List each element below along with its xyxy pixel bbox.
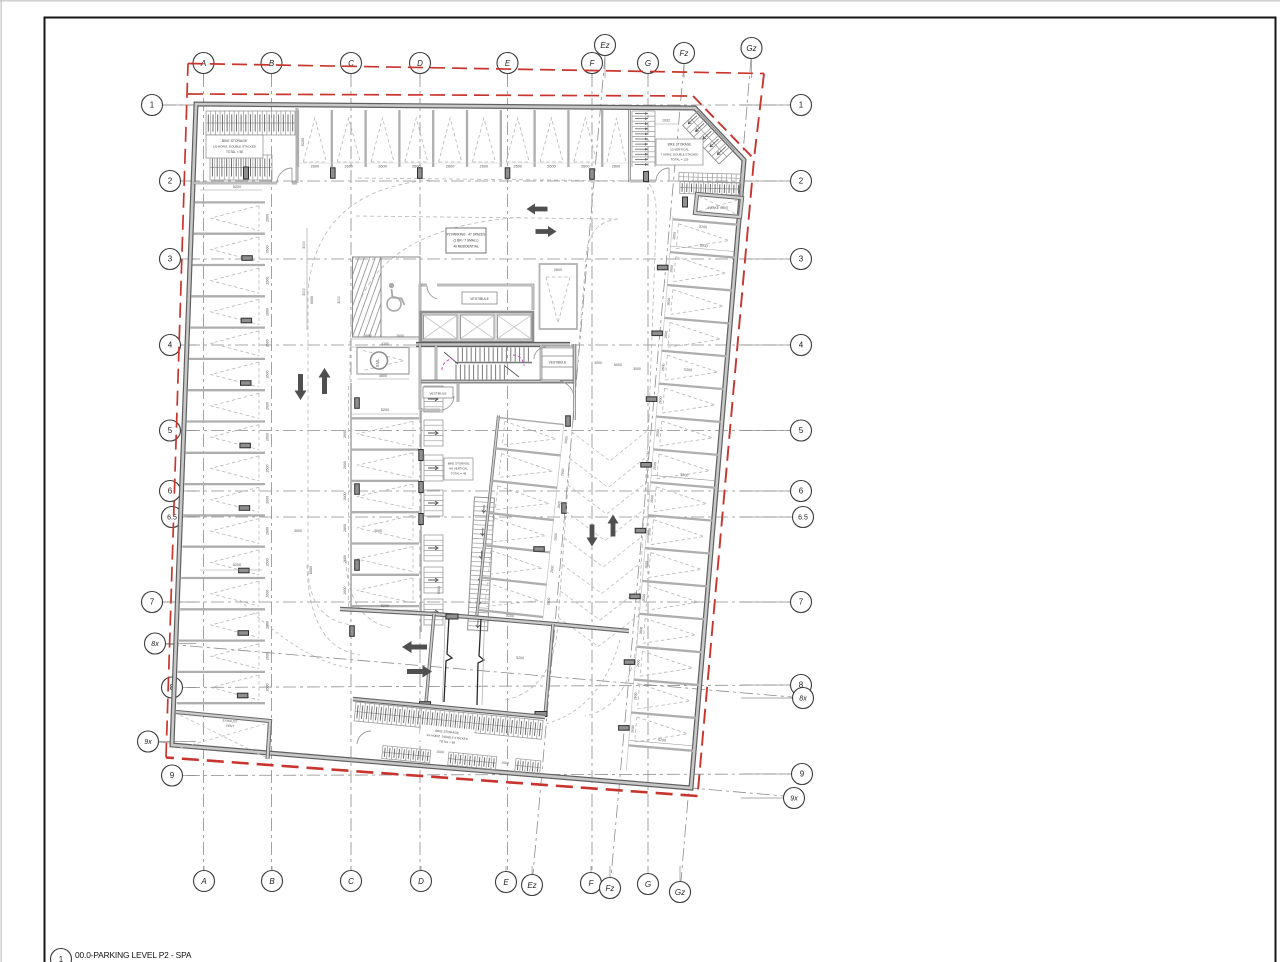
svg-text:2600: 2600 <box>560 468 565 476</box>
svg-text:2600: 2600 <box>343 586 347 594</box>
svg-text:2600: 2600 <box>554 268 562 272</box>
svg-text:5200: 5200 <box>658 738 666 743</box>
svg-text:2600: 2600 <box>513 165 521 169</box>
svg-text:2600: 2600 <box>550 565 555 573</box>
svg-text:5200: 5200 <box>233 185 241 189</box>
svg-text:2600: 2600 <box>669 265 674 273</box>
svg-text:4/0 VERTICAL: 4/0 VERTICAL <box>449 467 468 471</box>
svg-text:2600: 2600 <box>667 298 672 306</box>
svg-text:G: G <box>645 59 651 68</box>
svg-text:5200: 5200 <box>381 408 389 412</box>
svg-text:2600: 2600 <box>661 363 666 371</box>
svg-text:2600: 2600 <box>343 493 347 501</box>
svg-text:9: 9 <box>800 770 805 779</box>
svg-text:Ez: Ez <box>600 41 609 50</box>
svg-text:2600: 2600 <box>266 371 270 379</box>
svg-text:2600: 2600 <box>564 436 569 444</box>
svg-text:B: B <box>269 877 275 886</box>
svg-text:9x: 9x <box>790 796 798 803</box>
svg-text:2600: 2600 <box>633 692 638 700</box>
svg-text:6: 6 <box>168 487 173 496</box>
svg-text:TOTAL = 129: TOTAL = 129 <box>671 158 689 162</box>
svg-text:2600: 2600 <box>266 245 270 253</box>
svg-text:2600: 2600 <box>658 396 663 404</box>
svg-text:Ez: Ez <box>527 881 536 890</box>
svg-text:2600: 2600 <box>343 461 347 469</box>
svg-text:2600: 2600 <box>653 462 658 470</box>
svg-text:1550: 1550 <box>364 334 372 338</box>
svg-text:3000: 3000 <box>374 529 382 533</box>
svg-text:D: D <box>417 59 423 68</box>
svg-text:BIKE STORAGE: BIKE STORAGE <box>448 462 470 466</box>
svg-text:2600: 2600 <box>266 496 270 504</box>
svg-text:4600: 4600 <box>379 374 387 378</box>
svg-text:2600: 2600 <box>343 430 347 438</box>
svg-text:2600: 2600 <box>547 165 555 169</box>
svg-text:E: E <box>503 878 509 887</box>
svg-text:5200: 5200 <box>233 563 241 567</box>
svg-text:6000: 6000 <box>614 363 622 367</box>
svg-text:2600: 2600 <box>647 528 652 536</box>
svg-text:5200: 5200 <box>680 473 688 478</box>
svg-text:VENT: VENT <box>226 724 235 729</box>
svg-text:2600: 2600 <box>396 334 404 338</box>
svg-text:2600: 2600 <box>480 165 488 169</box>
svg-text:2600: 2600 <box>581 165 589 169</box>
svg-text:BIKE STORAGE: BIKE STORAGE <box>668 143 692 147</box>
svg-text:4: 4 <box>168 341 173 350</box>
svg-text:2600: 2600 <box>630 725 635 733</box>
svg-text:A: A <box>200 877 206 886</box>
svg-text:3: 3 <box>168 255 173 264</box>
svg-text:2600: 2600 <box>266 308 270 316</box>
svg-text:1: 1 <box>59 955 64 962</box>
svg-text:VESTIBULE: VESTIBULE <box>549 361 567 365</box>
svg-text:7 HORIZ. DOUBLE STACKED: 7 HORIZ. DOUBLE STACKED <box>661 153 699 157</box>
svg-text:2600: 2600 <box>343 524 347 532</box>
svg-text:2600: 2600 <box>266 652 270 660</box>
svg-text:2: 2 <box>168 177 173 186</box>
svg-text:2600: 2600 <box>266 277 270 285</box>
svg-text:6000: 6000 <box>309 566 313 574</box>
svg-text:E: E <box>505 59 511 68</box>
svg-text:1500: 1500 <box>436 750 444 755</box>
svg-text:2600: 2600 <box>664 331 669 339</box>
svg-text:3000: 3000 <box>302 288 306 296</box>
svg-text:2600: 2600 <box>644 561 649 569</box>
svg-text:2600: 2600 <box>266 558 270 566</box>
svg-text:6000: 6000 <box>437 586 442 594</box>
svg-text:2600: 2600 <box>639 626 644 634</box>
svg-text:3000: 3000 <box>337 296 341 304</box>
svg-text:2600: 2600 <box>344 165 352 169</box>
svg-text:5200: 5200 <box>699 244 707 249</box>
svg-text:5200: 5200 <box>516 656 524 661</box>
svg-text:2600: 2600 <box>266 527 270 535</box>
svg-text:Fz: Fz <box>606 884 615 893</box>
svg-text:40 RESIDENTIAL: 40 RESIDENTIAL <box>453 245 479 249</box>
svg-text:4: 4 <box>799 341 804 350</box>
svg-text:2: 2 <box>799 177 804 186</box>
svg-text:1/0 HORIZ. DOUBLE STACKED: 1/0 HORIZ. DOUBLE STACKED <box>213 145 257 149</box>
svg-text:BIKE STORAGE: BIKE STORAGE <box>222 139 248 143</box>
svg-text:6.5: 6.5 <box>798 515 808 522</box>
svg-text:10 VERTICAL: 10 VERTICAL <box>670 148 689 152</box>
svg-text:Gz: Gz <box>746 44 756 53</box>
svg-text:2600: 2600 <box>343 555 347 563</box>
svg-text:2600: 2600 <box>266 214 270 222</box>
svg-text:G: G <box>645 880 651 889</box>
svg-text:5200: 5200 <box>699 225 707 230</box>
svg-text:2600: 2600 <box>266 433 270 441</box>
svg-text:2600: 2600 <box>672 232 677 240</box>
svg-text:TOTAL = 46: TOTAL = 46 <box>451 472 467 476</box>
svg-text:2600: 2600 <box>636 659 641 667</box>
svg-text:4150: 4150 <box>381 342 389 346</box>
svg-text:3000: 3000 <box>294 529 302 533</box>
svg-text:5200: 5200 <box>301 138 305 146</box>
svg-text:1932: 1932 <box>662 119 670 123</box>
svg-text:VESTIBULE: VESTIBULE <box>429 392 446 396</box>
svg-text:3000: 3000 <box>633 367 641 371</box>
svg-text:7: 7 <box>799 598 804 607</box>
svg-text:9x: 9x <box>144 739 152 746</box>
svg-text:2600: 2600 <box>650 495 655 503</box>
svg-text:VESTIBULE: VESTIBULE <box>470 297 489 301</box>
svg-text:3000: 3000 <box>302 241 306 249</box>
svg-text:SML: SML <box>375 358 380 367</box>
svg-text:2600: 2600 <box>446 165 454 169</box>
svg-text:TOTAL = 56: TOTAL = 56 <box>226 150 243 154</box>
svg-text:Gz: Gz <box>675 888 685 897</box>
svg-text:5: 5 <box>168 426 173 435</box>
svg-text:5200: 5200 <box>684 368 692 373</box>
svg-text:3: 3 <box>799 255 804 264</box>
svg-text:2600: 2600 <box>266 402 270 410</box>
svg-text:6: 6 <box>799 487 804 496</box>
svg-text:6.5: 6.5 <box>167 515 177 522</box>
svg-text:2600: 2600 <box>557 501 562 509</box>
svg-text:8x: 8x <box>799 696 807 703</box>
svg-text:00.0-PARKING LEVEL P2 - SPA: 00.0-PARKING LEVEL P2 - SPA <box>75 950 192 960</box>
svg-text:INTAKE VENT: INTAKE VENT <box>708 206 729 210</box>
svg-text:1500: 1500 <box>501 761 509 766</box>
svg-text:2600: 2600 <box>378 165 386 169</box>
svg-text:(1 BR / 7 SMALL): (1 BR / 7 SMALL) <box>454 239 479 243</box>
svg-text:2600: 2600 <box>266 621 270 629</box>
svg-text:2600: 2600 <box>546 597 551 605</box>
svg-text:7: 7 <box>150 598 155 607</box>
svg-text:2600: 2600 <box>266 684 270 692</box>
svg-text:2600: 2600 <box>553 533 558 541</box>
svg-text:2600: 2600 <box>266 464 270 472</box>
svg-text:5200: 5200 <box>381 604 389 608</box>
svg-text:2600: 2600 <box>655 429 660 437</box>
svg-text:1: 1 <box>150 101 155 110</box>
svg-text:2600: 2600 <box>266 339 270 347</box>
svg-text:2600: 2600 <box>612 165 620 169</box>
svg-text:B: B <box>269 59 275 68</box>
svg-text:D: D <box>418 877 424 886</box>
svg-text:2600: 2600 <box>311 165 319 169</box>
svg-text:9: 9 <box>170 771 175 780</box>
svg-text:C: C <box>348 877 354 886</box>
svg-text:8x: 8x <box>151 641 159 648</box>
svg-text:2600: 2600 <box>266 590 270 598</box>
svg-text:3000: 3000 <box>594 361 602 365</box>
svg-text:P2 PARKING - 47 SPACES: P2 PARKING - 47 SPACES <box>447 233 486 237</box>
svg-text:2600: 2600 <box>642 594 647 602</box>
svg-text:6000: 6000 <box>310 296 314 304</box>
svg-text:5: 5 <box>799 426 804 435</box>
svg-text:1: 1 <box>799 101 804 110</box>
svg-text:Fz: Fz <box>680 49 689 58</box>
